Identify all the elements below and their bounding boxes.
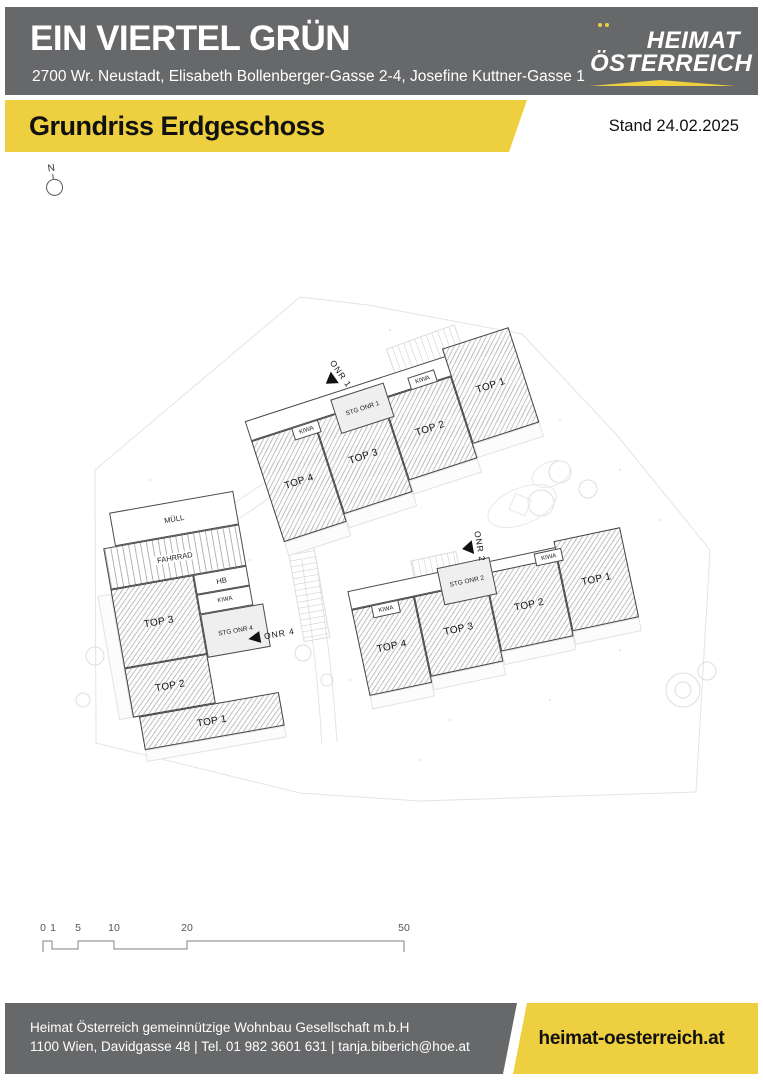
onr4-hb-label: HB — [214, 575, 230, 586]
onr2-kiwa-right-label: KIWA — [541, 553, 557, 562]
onr4-fahrrad-label: FAHRRAD — [154, 549, 195, 565]
onr2-top2-label: TOP 2 — [513, 596, 545, 613]
onr2-kiwa-left-label: KIWA — [378, 605, 394, 614]
footer-info-band: Heimat Österreich gemeinnützige Wohnbau … — [5, 1003, 520, 1074]
scale-label-0: 0 — [40, 922, 46, 934]
onr1-stairwell-label: STG ONR 1 — [345, 400, 380, 417]
project-title: EIN VIERTEL GRÜN — [30, 19, 350, 59]
onr4-top3-label: TOP 3 — [143, 614, 175, 630]
scale-label-20: 20 — [181, 922, 193, 934]
section-title: Grundriss Erdgeschoss — [5, 111, 325, 142]
onr2-stairwell-label: STG ONR 2 — [449, 574, 485, 588]
scale-label-5: 5 — [75, 922, 81, 934]
onr1-top1-label: TOP 1 — [475, 376, 507, 396]
onr4-top2-label: TOP 2 — [154, 678, 186, 694]
section-banner: Grundriss Erdgeschoss — [5, 100, 535, 152]
onr2-top3-label: TOP 3 — [443, 620, 475, 637]
scale-bar: 0 1 5 10 20 50 — [0, 915, 763, 965]
site-plan: TOP 4 TOP 3 TOP 2 TOP 1 STG ONR 1 KIWA K… — [0, 160, 763, 890]
floorplan-page: EIN VIERTEL GRÜN 2700 Wr. Neustadt, Elis… — [0, 0, 763, 1080]
footer-company: Heimat Österreich gemeinnützige Wohnbau … — [30, 1018, 520, 1037]
onr4-kiwa-label: KIWA — [217, 596, 233, 605]
onr2-entrance-arrow-icon — [461, 541, 474, 557]
scale-label-10: 10 — [108, 922, 120, 934]
plan-date: Stand 24.02.2025 — [609, 100, 739, 152]
heimat-oesterreich-logo: HEIMAT ÖSTERREICH — [590, 29, 740, 86]
onr2-top4-label: TOP 4 — [376, 638, 408, 655]
onr1-top3-label: TOP 3 — [347, 446, 379, 466]
onr4-muell-label: MÜLL — [161, 512, 186, 525]
onr1-kiwa-left-label: KIWA — [298, 425, 314, 435]
onr1-top4-label: TOP 4 — [283, 472, 315, 492]
onr4-top3: TOP 3 — [110, 575, 207, 668]
logo-umlaut-dots-icon — [598, 23, 609, 27]
logo-line1: HEIMAT — [590, 29, 740, 52]
project-address: 2700 Wr. Neustadt, Elisabeth Bollenberge… — [32, 68, 585, 86]
onr4-top1-label: TOP 1 — [196, 713, 228, 729]
footer-contact: 1100 Wien, Davidgasse 48 | Tel. 01 982 3… — [30, 1037, 520, 1056]
header-band: EIN VIERTEL GRÜN 2700 Wr. Neustadt, Elis… — [5, 7, 758, 95]
onr2-top1-label: TOP 1 — [580, 571, 612, 588]
scale-label-1: 1 — [50, 922, 56, 934]
scale-label-50: 50 — [398, 922, 410, 934]
onr1-top2-label: TOP 2 — [414, 419, 446, 439]
logo-line2: ÖSTERREICH — [590, 52, 740, 75]
onr4-entrance-arrow-icon — [247, 631, 261, 645]
logo-swoosh-icon — [590, 80, 735, 86]
onr1-kiwa-right-label: KIWA — [414, 375, 430, 385]
footer-website: heimat-oesterreich.at — [539, 1028, 725, 1050]
footer-website-box: heimat-oesterreich.at — [505, 1003, 758, 1074]
